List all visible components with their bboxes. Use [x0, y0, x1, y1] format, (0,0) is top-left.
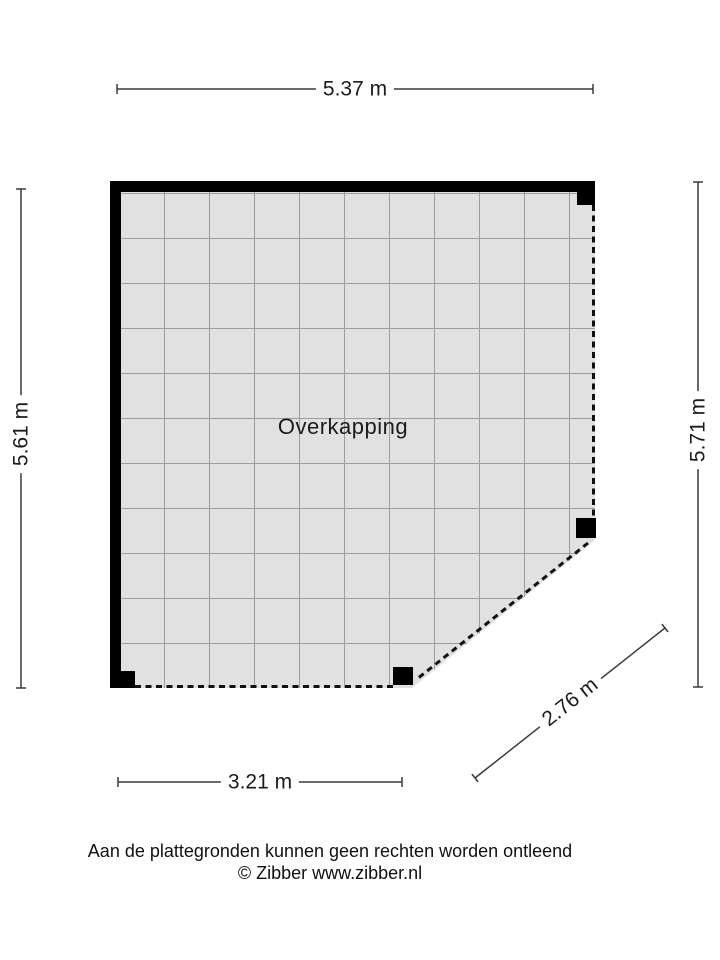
- floorplan-canvas: [0, 0, 720, 960]
- room-label: Overkapping: [278, 414, 408, 440]
- dimension-label-right: 5.71 m: [687, 391, 710, 469]
- footer: Aan de plattegronden kunnen geen rechten…: [0, 841, 660, 884]
- wall-top: [110, 181, 595, 192]
- footer-credit: © Zibber www.zibber.nl: [0, 863, 660, 885]
- dimension-label-left: 5.61 m: [10, 395, 33, 473]
- post-bottom-left: [110, 671, 135, 688]
- footer-disclaimer: Aan de plattegronden kunnen geen rechten…: [0, 841, 660, 863]
- post-mid-right: [576, 518, 596, 538]
- dimension-label-bottom: 3.21 m: [221, 771, 299, 794]
- dimension-label-top: 5.37 m: [316, 78, 394, 101]
- wall-left: [110, 181, 121, 688]
- post-bottom-mid: [393, 667, 413, 685]
- post-top-right: [577, 181, 595, 205]
